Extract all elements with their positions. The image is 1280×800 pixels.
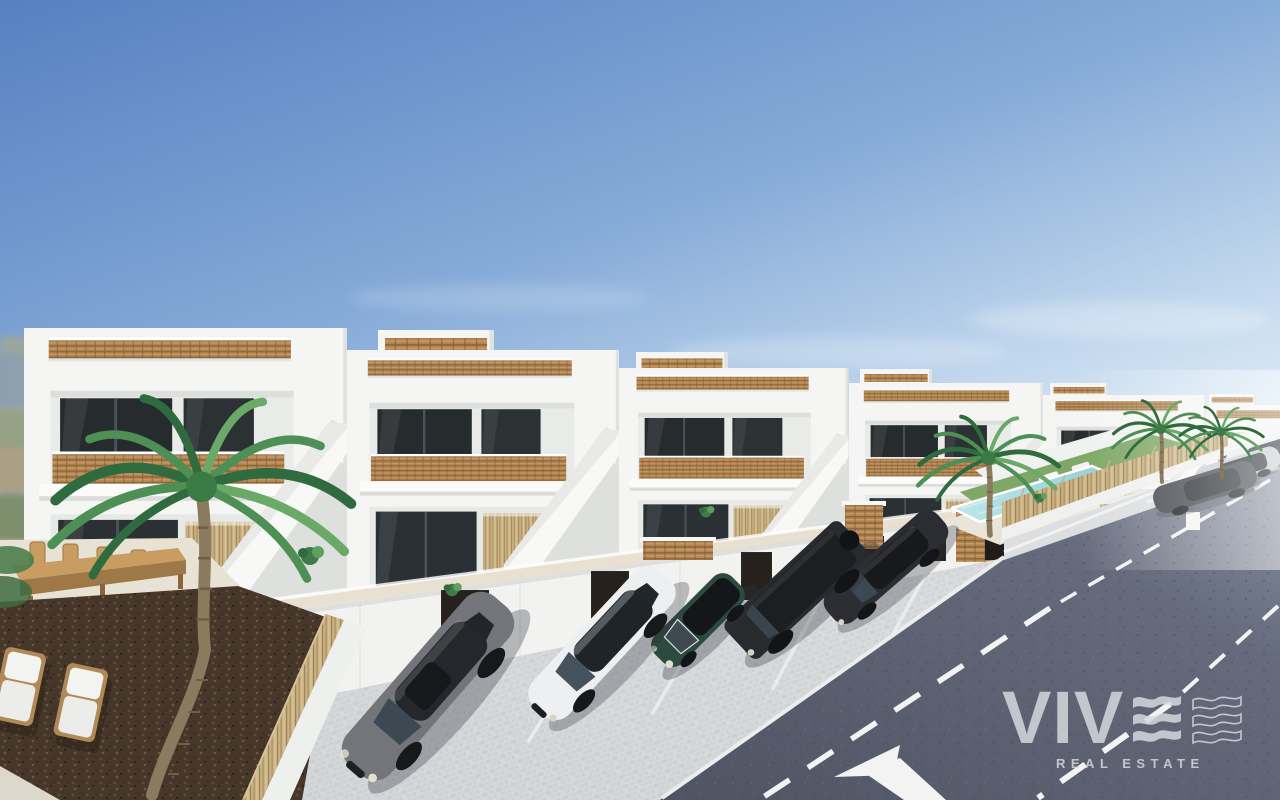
render-image: VIV REAL ESTATE [0,0,1280,800]
brand-wordmark: VIV [1002,688,1272,749]
watermark-logo: VIV REAL ESTATE [1002,688,1272,771]
triple-wave-e-icon [1131,691,1183,749]
brand-letters: VIV [1002,688,1124,749]
triple-wave-outline-icon [1190,691,1244,749]
distance-haze [1080,370,1280,570]
